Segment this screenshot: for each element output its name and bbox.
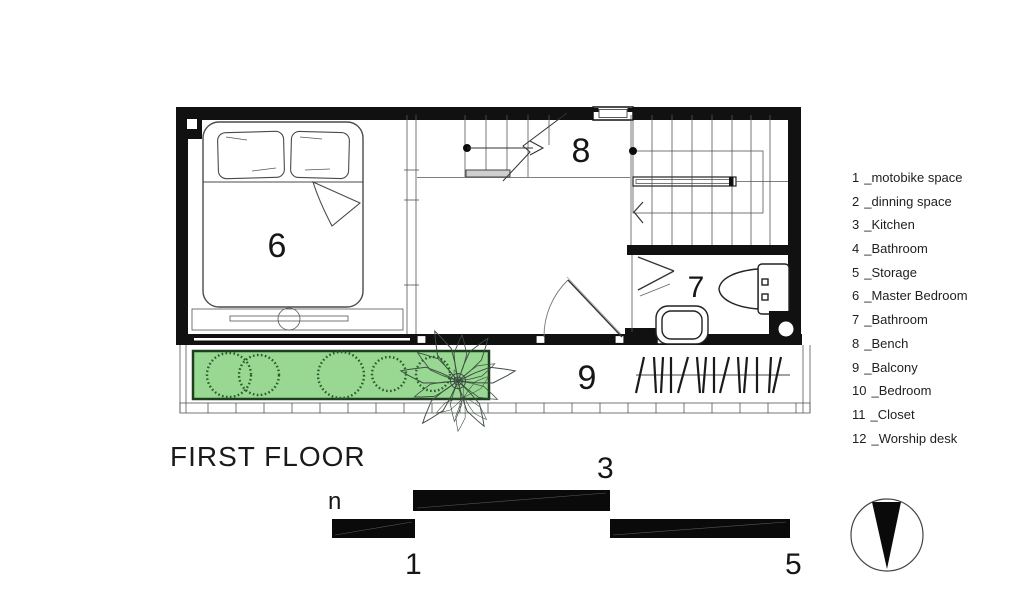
balcony-edge: [180, 403, 810, 413]
bedroom-window-band: [194, 338, 410, 341]
legend-name: _Balcony: [864, 360, 917, 375]
room-label-balcony: 9: [578, 359, 597, 397]
pillow: [290, 131, 349, 179]
legend-name: _Kitchen: [864, 217, 915, 232]
stool: [278, 308, 300, 330]
stair-break-line: [503, 113, 567, 181]
legend-item: 4_Bathroom: [852, 237, 1022, 261]
room-label-master-bedroom: 6: [268, 227, 287, 265]
legend-item: 12_Worship desk: [852, 427, 1022, 451]
track-mullion: [615, 336, 624, 344]
legend-num: 12: [852, 431, 866, 446]
balcony: [180, 345, 810, 413]
bifold-door: [638, 257, 674, 296]
legend-item: 7_Bathroom: [852, 308, 1022, 332]
section-key: n 1 3 5: [328, 452, 802, 581]
handrail: [633, 177, 736, 186]
room-label-bathroom: 7: [688, 271, 705, 304]
legend-item: 6_Master Bedroom: [852, 284, 1022, 308]
legend-item: 5_Storage: [852, 261, 1022, 285]
legend-name: _Bedroom: [871, 383, 931, 398]
north-arrow-icon: [851, 499, 923, 571]
section-label-n: n: [328, 488, 341, 515]
legend-num: 4: [852, 241, 859, 256]
desk-bar: [230, 316, 348, 321]
track-mullion: [417, 336, 426, 344]
legend-num: 6: [852, 288, 859, 303]
legend-name: _Bathroom: [864, 241, 928, 256]
door-swing: [544, 277, 622, 337]
legend-item: 8_Bench: [852, 332, 1022, 356]
corner-fixture-pipe: [779, 322, 794, 337]
legend-item: 11_Closet: [852, 403, 1022, 427]
section-label-5: 5: [785, 548, 802, 581]
legend-num: 5: [852, 265, 859, 280]
legend-num: 3: [852, 217, 859, 232]
stairs-right: [629, 115, 788, 245]
stair-arrow-left: [634, 202, 643, 223]
stairs-left: [417, 113, 630, 181]
legend-name: _Bench: [864, 336, 908, 351]
stair-tread-hatch: [466, 170, 510, 177]
wall-top: [176, 107, 801, 120]
toilet: [656, 306, 708, 344]
legend-name: _Worship desk: [871, 431, 957, 446]
legend-num: 2: [852, 194, 859, 209]
legend-name: _dinning space: [864, 194, 951, 209]
top-window-jamb: [628, 108, 633, 112]
legend-item: 3_Kitchen: [852, 213, 1022, 237]
wall-left: [176, 107, 188, 345]
legend: 1_motobike space 2_dinning space 3_Kitch…: [852, 166, 1022, 450]
legend-num: 10: [852, 383, 866, 398]
legend-num: 8: [852, 336, 859, 351]
legend-name: _Closet: [871, 407, 915, 422]
door-pier: [625, 328, 657, 345]
corner-pier-notch: [187, 119, 197, 129]
legend-num: 7: [852, 312, 859, 327]
legend-name: _Storage: [864, 265, 917, 280]
floor-title: FIRST FLOOR: [170, 441, 366, 472]
top-window-jamb: [594, 108, 599, 112]
legend-item: 1_motobike space: [852, 166, 1022, 190]
legend-item: 9_Balcony: [852, 356, 1022, 380]
legend-item: 10_Bedroom: [852, 379, 1022, 403]
wall-right: [788, 107, 801, 345]
legend-num: 1: [852, 170, 859, 185]
legend-name: _motobike space: [864, 170, 962, 185]
legend-name: _Master Bedroom: [864, 288, 967, 303]
legend-num: 9: [852, 360, 859, 375]
louvers: [636, 357, 790, 393]
section-label-3: 3: [597, 452, 614, 485]
stair-start-dot: [629, 147, 637, 155]
wall-stair-bathroom: [627, 245, 801, 255]
pillow: [217, 131, 284, 179]
legend-item: 2_dinning space: [852, 190, 1022, 214]
bathroom: [632, 255, 801, 345]
legend-name: _Bathroom: [864, 312, 928, 327]
section-label-1: 1: [405, 548, 422, 581]
legend-num: 11: [852, 407, 866, 422]
sink: [719, 264, 789, 314]
master-bedroom: [192, 115, 419, 334]
room-label-bench: 8: [572, 132, 591, 170]
